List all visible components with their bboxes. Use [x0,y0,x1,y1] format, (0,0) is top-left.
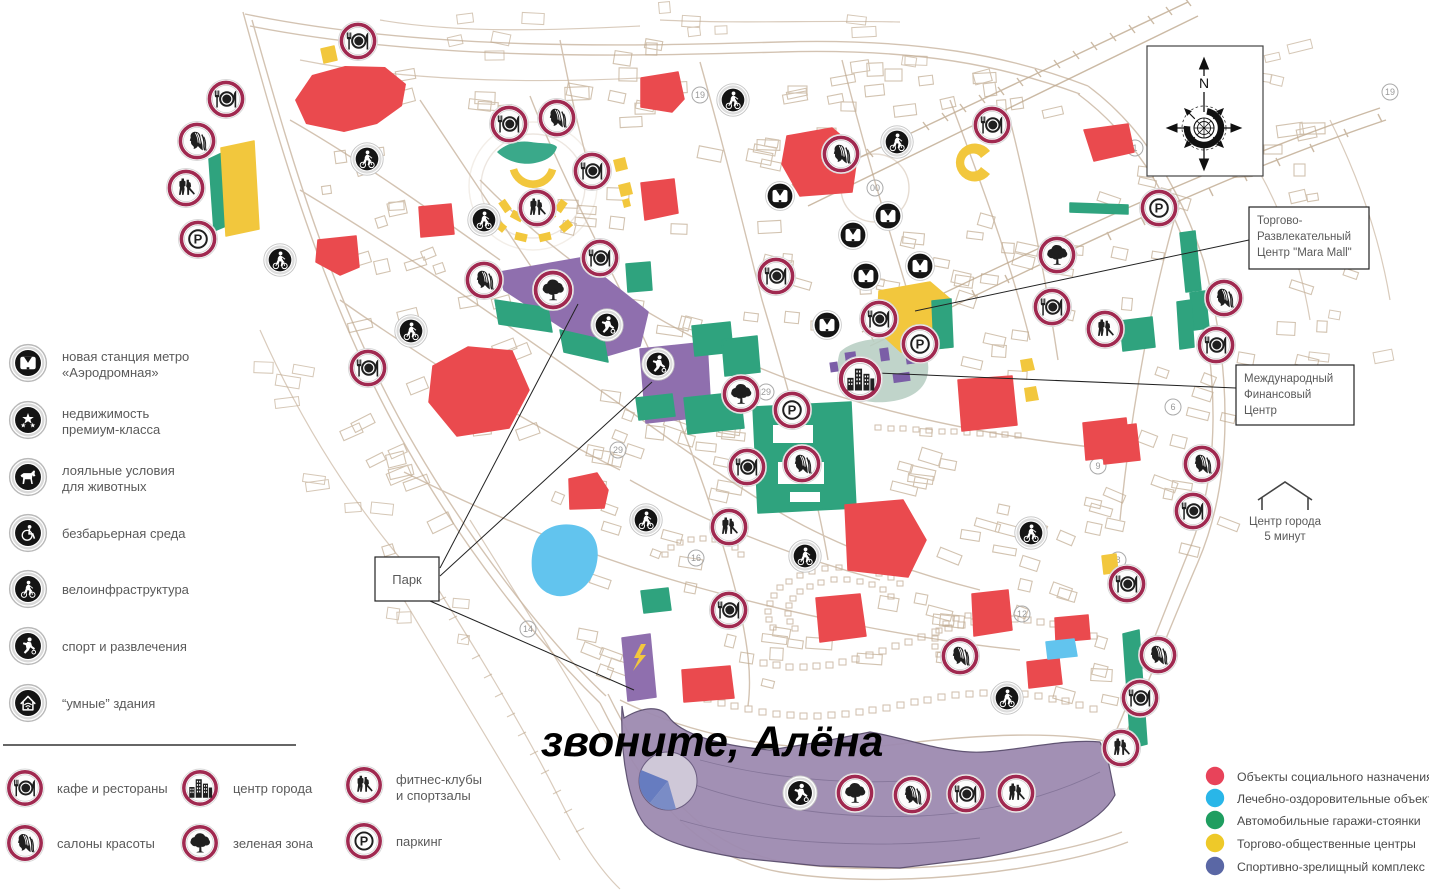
svg-text:N: N [1199,75,1209,91]
svg-text:Международный: Международный [1244,373,1333,385]
svg-text:29: 29 [761,387,771,397]
svg-text:16: 16 [691,553,701,563]
svg-text:“умные” здания: “умные” здания [62,696,155,711]
svg-text:Торгово-общественные центры: Торгово-общественные центры [1237,837,1416,851]
svg-text:безбарьерная среда: безбарьерная среда [62,526,186,541]
svg-text:спорт и развлечения: спорт и развлечения [62,639,187,654]
svg-text:19: 19 [695,90,705,100]
svg-text:Объекты социального назначения: Объекты социального назначения [1237,770,1429,784]
svg-text:«Аэродромная»: «Аэродромная» [62,365,159,380]
svg-text:Торгово-: Торгово- [1257,215,1303,227]
svg-text:для животных: для животных [62,479,147,494]
svg-text:лояльные условия: лояльные условия [62,463,175,478]
svg-text:Центр города: Центр города [1249,516,1322,528]
svg-text:паркинг: паркинг [396,834,443,849]
svg-text:Парк: Парк [392,572,422,587]
svg-text:29: 29 [613,445,623,455]
svg-text:5 минут: 5 минут [1264,531,1306,543]
svg-text:19: 19 [1385,87,1395,97]
svg-text:Центр "Mara Mall": Центр "Mara Mall" [1257,247,1352,259]
svg-text:Финансовый: Финансовый [1244,389,1311,401]
svg-text:12: 12 [1017,609,1027,619]
svg-text:Спортивно-зрелищный комплекс: Спортивно-зрелищный комплекс [1237,860,1425,874]
svg-text:фитнес-клубы: фитнес-клубы [396,772,482,787]
svg-text:и спортзалы: и спортзалы [396,788,471,803]
svg-text:центр города: центр города [233,781,313,796]
svg-text:велоинфраструктура: велоинфраструктура [62,582,190,597]
svg-text:новая станция метро: новая станция метро [62,349,189,364]
svg-text:зеленая зона: зеленая зона [233,836,314,851]
svg-text:6: 6 [1170,402,1175,412]
svg-text:недвижимость: недвижимость [62,406,149,421]
svg-text:звоните, Алёна: звоните, Алёна [541,718,883,766]
svg-text:Развлекательный: Развлекательный [1257,231,1351,243]
svg-text:Центр: Центр [1244,405,1277,417]
svg-text:9: 9 [1095,461,1100,471]
svg-text:премиум-класса: премиум-класса [62,422,161,437]
svg-text:салоны красоты: салоны красоты [57,836,155,851]
svg-text:Автомобильные гаражи-стоянки: Автомобильные гаражи-стоянки [1237,814,1421,828]
svg-text:14: 14 [523,624,533,634]
svg-text:Лечебно-оздоровительные объект: Лечебно-оздоровительные объекты [1237,792,1429,806]
svg-text:00: 00 [870,183,880,193]
svg-text:кафе и рестораны: кафе и рестораны [57,781,168,796]
